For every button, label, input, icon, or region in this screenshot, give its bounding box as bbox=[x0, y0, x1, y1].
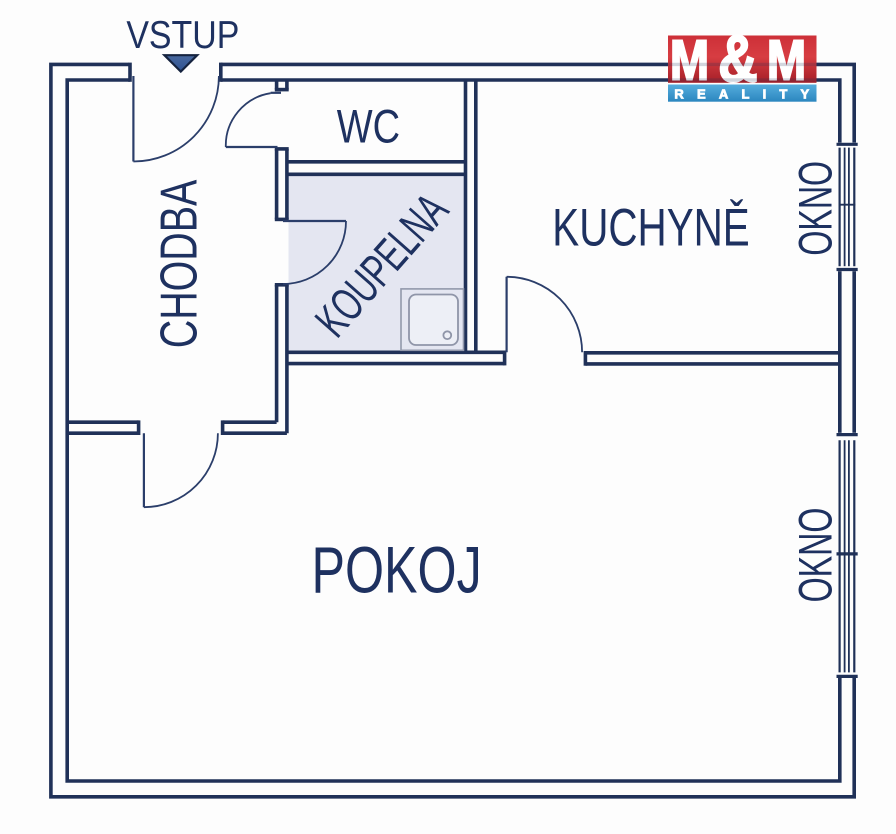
svg-text:M: M bbox=[670, 29, 709, 92]
svg-text:KUCHYNĚ: KUCHYNĚ bbox=[552, 197, 749, 257]
svg-text:OKNO: OKNO bbox=[789, 508, 842, 603]
svg-text:&: & bbox=[718, 22, 758, 96]
svg-text:POKOJ: POKOJ bbox=[312, 534, 482, 607]
svg-text:WC: WC bbox=[337, 101, 400, 154]
svg-text:REALITY: REALITY bbox=[674, 86, 822, 101]
svg-text:VSTUP: VSTUP bbox=[126, 13, 239, 57]
svg-text:CHODBA: CHODBA bbox=[150, 179, 207, 348]
svg-text:M: M bbox=[767, 29, 806, 92]
svg-text:OKNO: OKNO bbox=[789, 161, 842, 256]
